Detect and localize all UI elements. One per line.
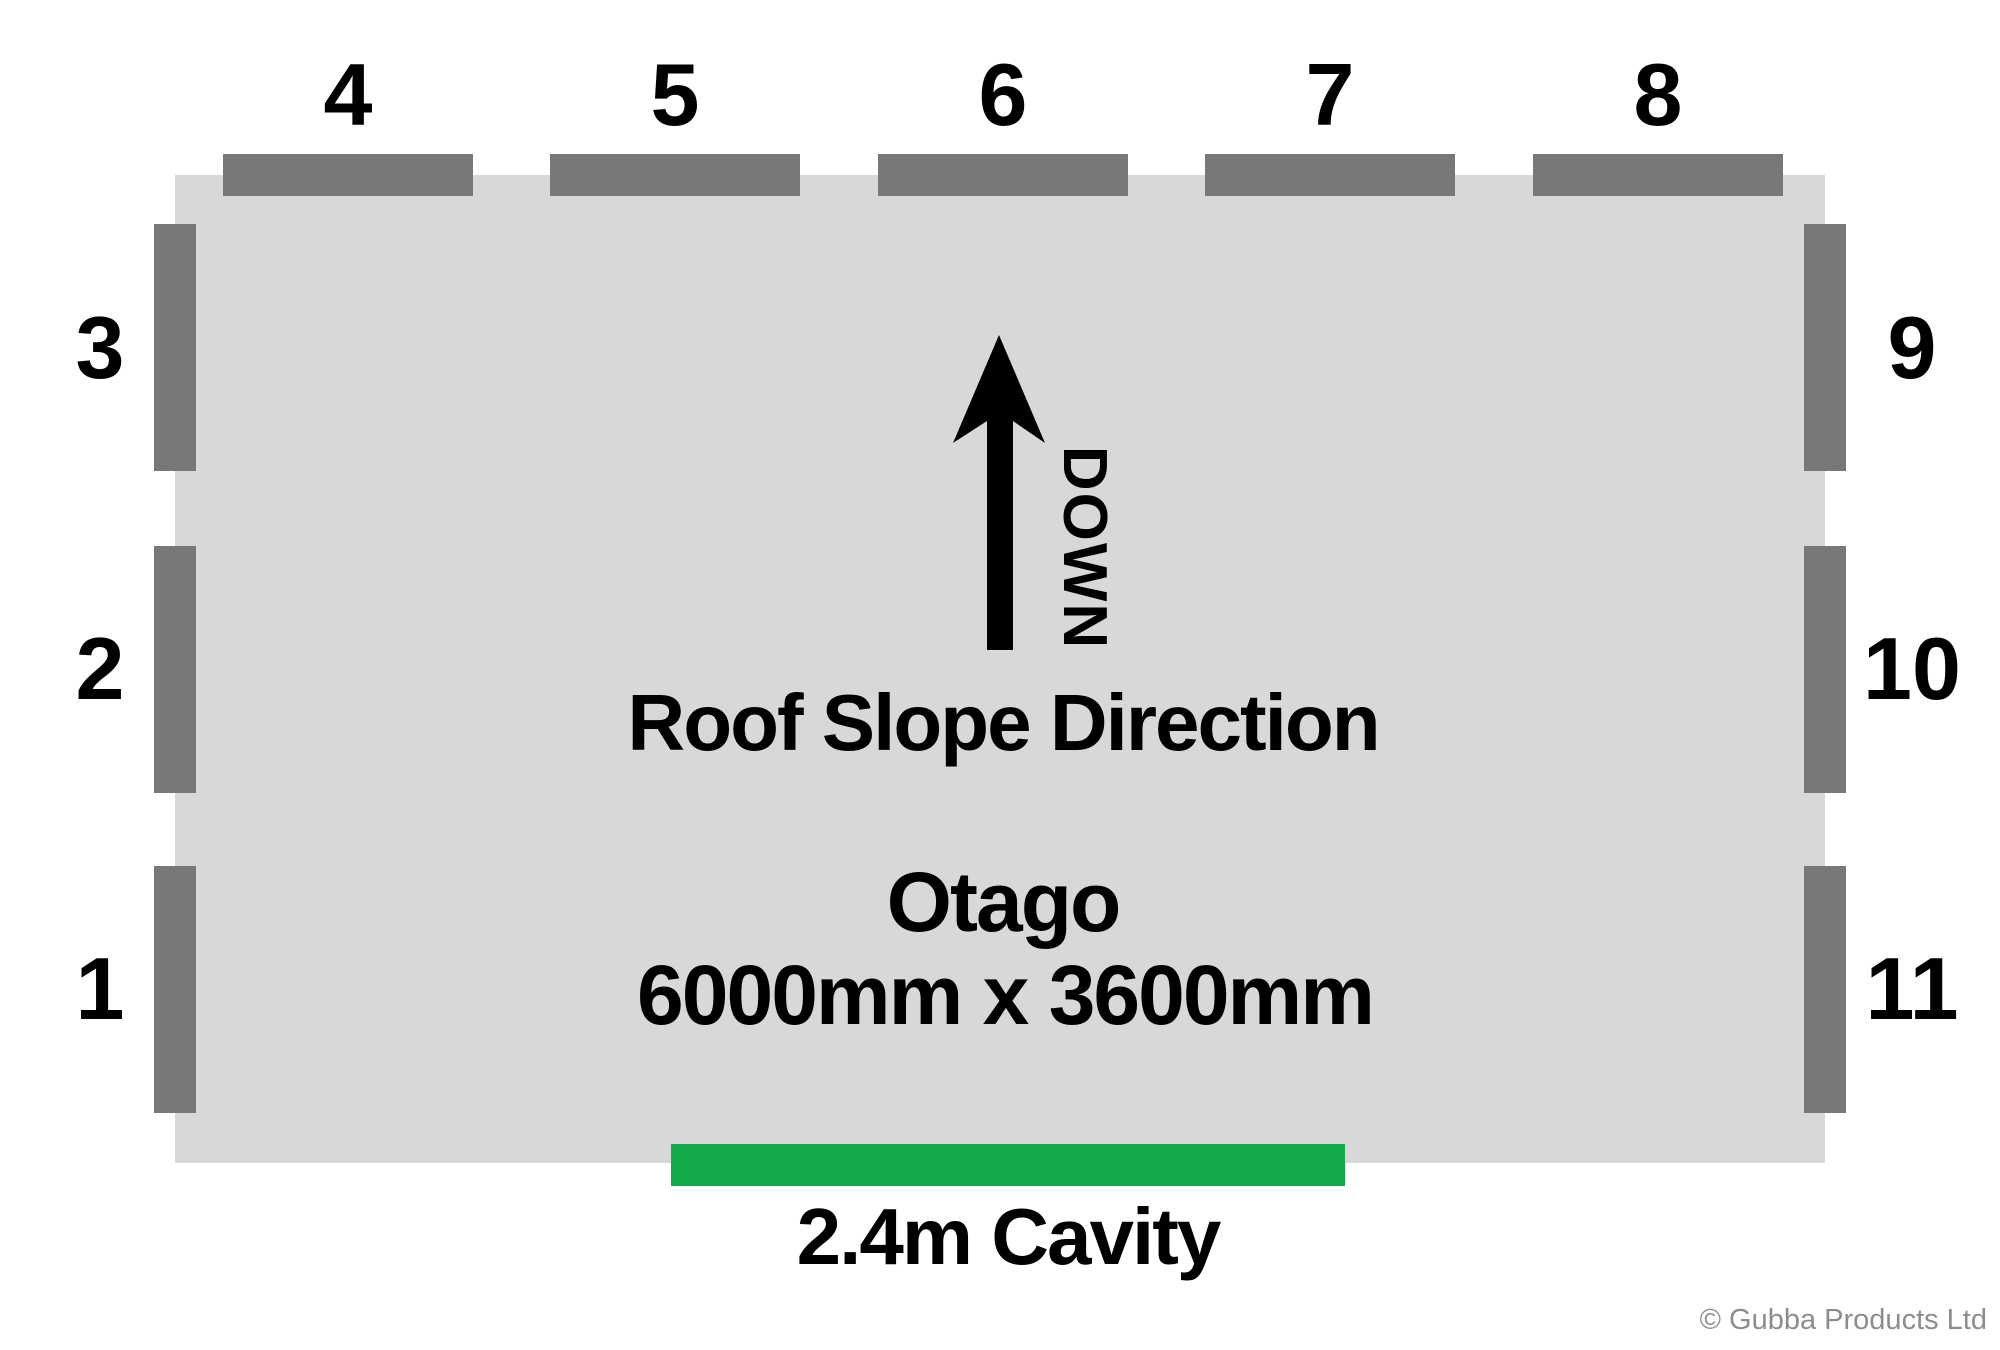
copyright-text: © Gubba Products Ltd	[1700, 1304, 1987, 1337]
panel-label-11: 11	[1865, 945, 1958, 1033]
roof-slope-arrow-icon	[950, 335, 1048, 650]
panel-3	[154, 224, 196, 471]
down-label: DOWN	[1053, 446, 1115, 650]
roof-slope-direction-label: Roof Slope Direction	[627, 683, 1378, 763]
panel-11	[1804, 866, 1846, 1113]
panel-6	[878, 154, 1128, 196]
model-name: Otago	[887, 860, 1120, 944]
panel-label-2: 2	[76, 625, 125, 713]
panel-label-6: 6	[979, 51, 1028, 139]
panel-label-1: 1	[76, 945, 125, 1033]
cavity-bar	[671, 1144, 1345, 1186]
panel-label-4: 4	[324, 51, 373, 139]
panel-label-8: 8	[1634, 51, 1683, 139]
panel-9	[1804, 224, 1846, 471]
panel-label-10: 10	[1863, 625, 1961, 713]
panel-label-7: 7	[1306, 51, 1355, 139]
panel-4	[223, 154, 473, 196]
panel-label-3: 3	[76, 304, 125, 392]
panel-2	[154, 546, 196, 793]
floor-plan-diagram: 4 5 6 7 8 3 2 1 9 10 11 DOWN Roof Slope …	[0, 0, 2000, 1350]
panel-label-9: 9	[1888, 304, 1937, 392]
cavity-label: 2.4m Cavity	[797, 1197, 1220, 1277]
model-dimensions: 6000mm x 3600mm	[637, 953, 1373, 1037]
panel-5	[550, 154, 800, 196]
panel-label-5: 5	[651, 51, 700, 139]
panel-1	[154, 866, 196, 1113]
panel-8	[1533, 154, 1783, 196]
panel-7	[1205, 154, 1455, 196]
panel-10	[1804, 546, 1846, 793]
